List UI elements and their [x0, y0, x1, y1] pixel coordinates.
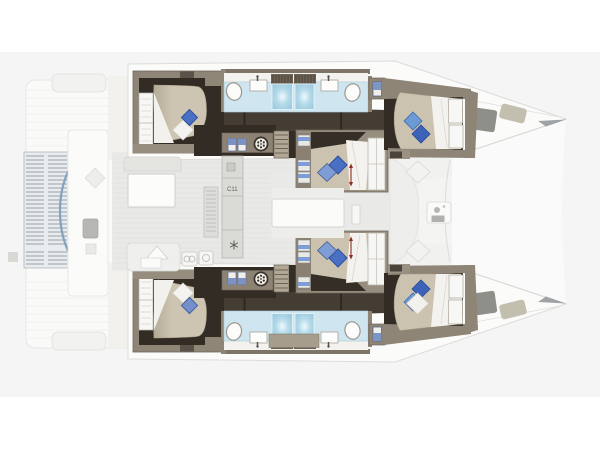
- svg-text:C11: C11: [227, 187, 238, 193]
